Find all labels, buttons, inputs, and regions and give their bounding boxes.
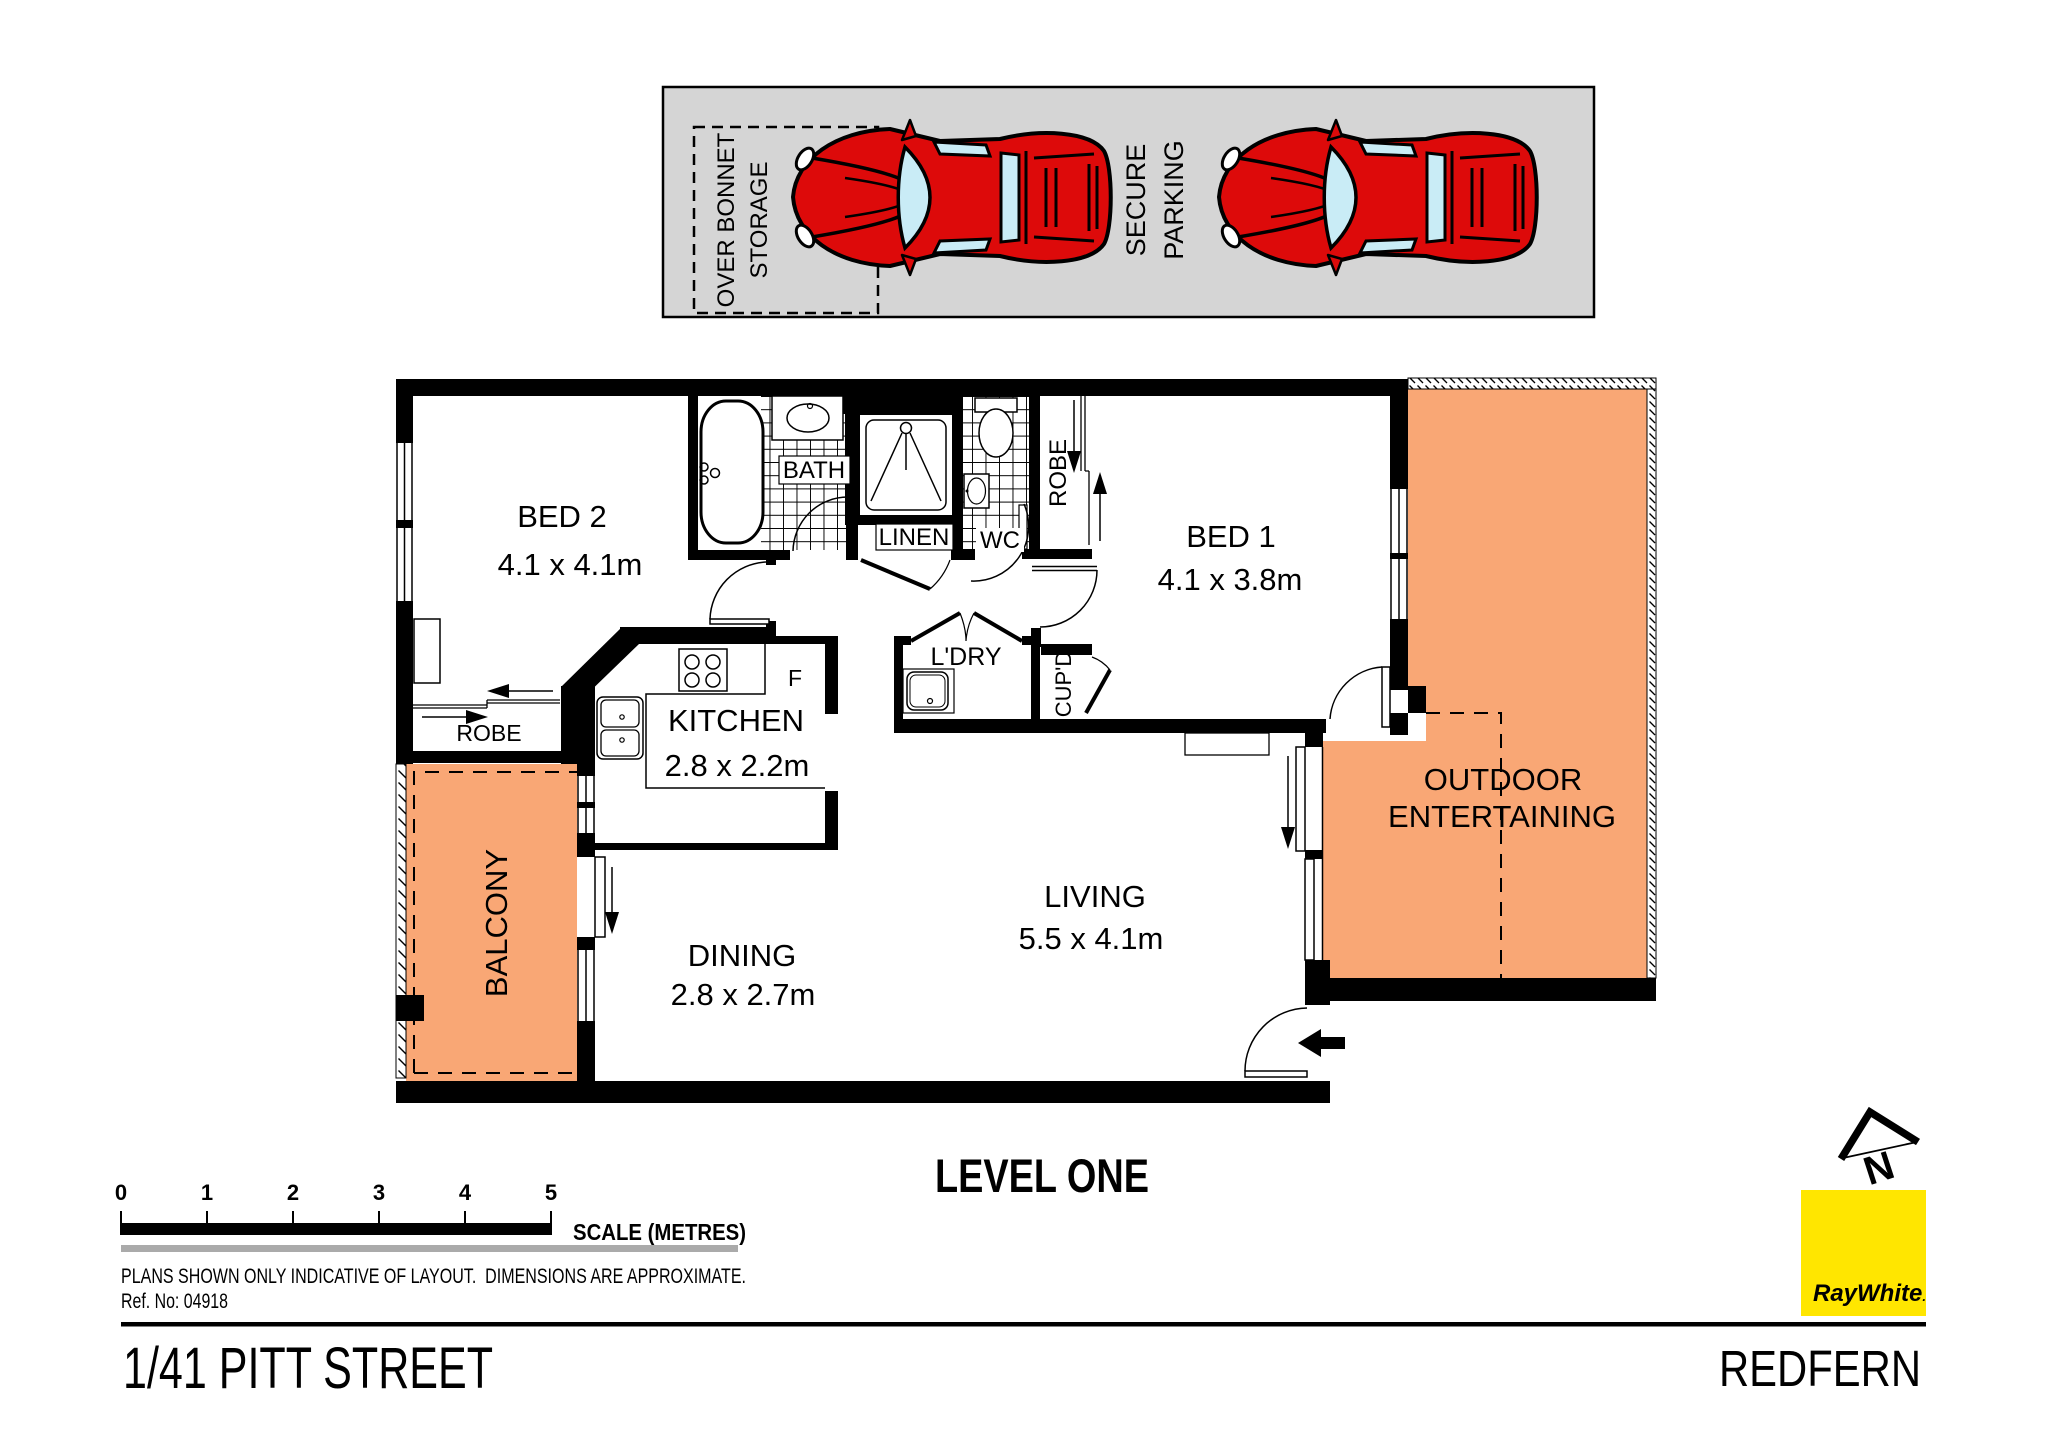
svg-text:1/41 PITT STREET: 1/41 PITT STREET	[123, 1336, 493, 1401]
svg-text:OVER BONNET: OVER BONNET	[713, 132, 740, 307]
svg-text:PLANS SHOWN ONLY INDICATIVE OF: PLANS SHOWN ONLY INDICATIVE OF LAYOUT. D…	[121, 1265, 746, 1288]
svg-text:ROBE: ROBE	[1045, 439, 1072, 507]
svg-text:0: 0	[115, 1180, 127, 1205]
svg-text:4.1 x 4.1m: 4.1 x 4.1m	[498, 547, 643, 582]
svg-text:ENTERTAINING: ENTERTAINING	[1388, 799, 1616, 834]
svg-text:LINEN: LINEN	[879, 524, 950, 551]
svg-text:LIVING: LIVING	[1044, 879, 1146, 914]
svg-text:BALCONY: BALCONY	[479, 849, 514, 997]
svg-text:5.5 x 4.1m: 5.5 x 4.1m	[1019, 921, 1164, 956]
svg-text:4.1 x 3.8m: 4.1 x 3.8m	[1158, 562, 1303, 597]
svg-text:F: F	[788, 665, 802, 691]
svg-text:4: 4	[459, 1180, 472, 1205]
svg-text:LEVEL ONE: LEVEL ONE	[935, 1149, 1149, 1202]
svg-text:BATH: BATH	[783, 457, 845, 484]
svg-text:OUTDOOR: OUTDOOR	[1424, 762, 1582, 797]
svg-text:2: 2	[287, 1180, 299, 1205]
svg-text:2.8 x 2.2m: 2.8 x 2.2m	[665, 748, 810, 783]
svg-text:ROBE: ROBE	[456, 720, 521, 746]
svg-text:BED 2: BED 2	[517, 499, 607, 534]
svg-text:SECURE: SECURE	[1121, 144, 1151, 257]
svg-text:1: 1	[201, 1180, 213, 1205]
svg-text:RayWhite.: RayWhite.	[1813, 1280, 1926, 1307]
svg-text:STORAGE: STORAGE	[746, 162, 773, 279]
svg-text:WC: WC	[980, 527, 1020, 554]
svg-text:BED 1: BED 1	[1186, 519, 1276, 554]
svg-text:L'DRY: L'DRY	[930, 643, 1001, 671]
svg-text:KITCHEN: KITCHEN	[668, 703, 804, 738]
svg-text:REDFERN: REDFERN	[1719, 1340, 1921, 1397]
svg-text:CUP'D: CUP'D	[1051, 651, 1076, 718]
svg-text:2.8 x 2.7m: 2.8 x 2.7m	[671, 977, 816, 1012]
svg-text:Ref. No: 04918: Ref. No: 04918	[121, 1290, 228, 1313]
svg-text:DINING: DINING	[688, 938, 797, 973]
svg-text:PARKING: PARKING	[1159, 140, 1189, 260]
svg-text:5: 5	[545, 1180, 557, 1205]
svg-text:SCALE (METRES): SCALE (METRES)	[573, 1219, 746, 1245]
svg-text:3: 3	[373, 1180, 385, 1205]
